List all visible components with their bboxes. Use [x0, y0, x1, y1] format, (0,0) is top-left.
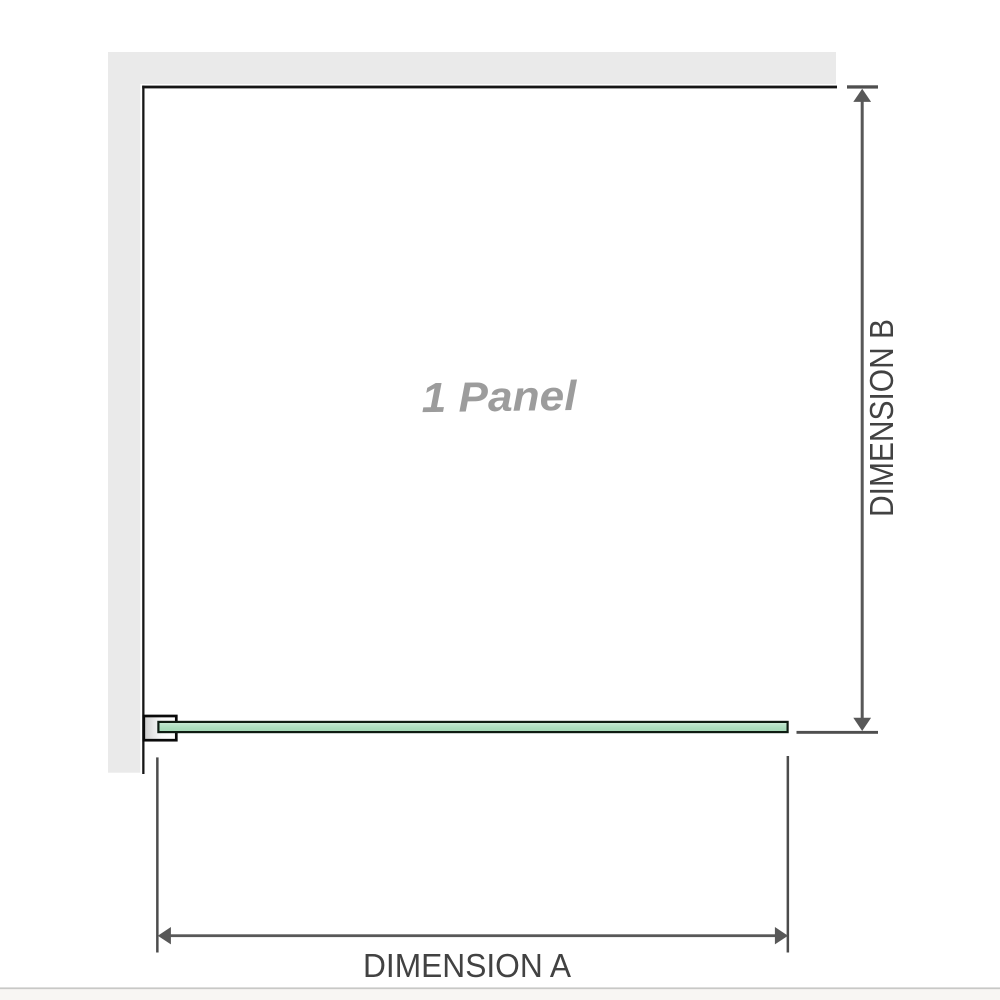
svg-text:DIMENSION A: DIMENSION A	[363, 948, 572, 985]
svg-text:1 Panel: 1 Panel	[421, 372, 578, 421]
svg-text:DIMENSION B: DIMENSION B	[864, 319, 901, 517]
